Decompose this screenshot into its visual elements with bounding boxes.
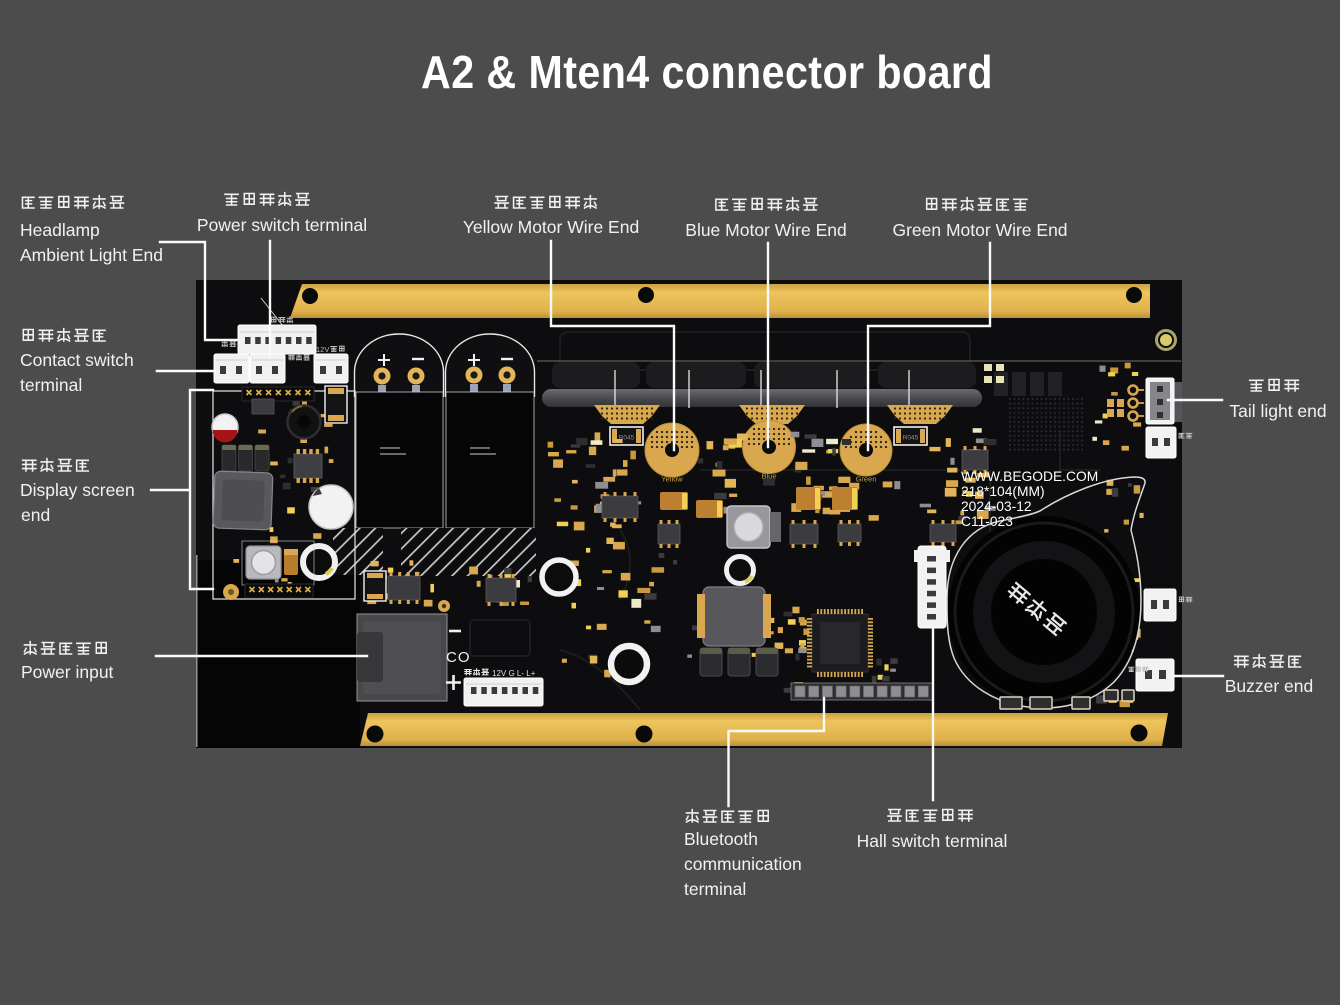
svg-text:Headlamp: Headlamp — [20, 220, 100, 240]
svg-text:Power input: Power input — [21, 662, 114, 682]
svg-text:Tail light end: Tail light end — [1229, 401, 1326, 421]
svg-text:Green: Green — [856, 475, 877, 484]
svg-text:Power switch terminal: Power switch terminal — [197, 215, 367, 235]
svg-text:12V G L- L+: 12V G L- L+ — [492, 669, 536, 678]
svg-text:terminal: terminal — [684, 879, 746, 899]
svg-text:A2 & Mten4 connector board: A2 & Mten4 connector board — [421, 47, 993, 99]
svg-text:Green Motor Wire End: Green Motor Wire End — [892, 220, 1067, 240]
svg-text:Display screen: Display screen — [20, 480, 135, 500]
svg-text:R045: R045 — [903, 435, 919, 442]
svg-text:terminal: terminal — [20, 375, 82, 395]
svg-text:2024-03-12: 2024-03-12 — [961, 499, 1032, 514]
svg-text:218*104(MM): 218*104(MM) — [961, 484, 1045, 499]
svg-text:CO: CO — [446, 649, 471, 666]
svg-text:Blue Motor Wire End: Blue Motor Wire End — [685, 220, 846, 240]
svg-text:Hall switch terminal: Hall switch terminal — [857, 831, 1008, 851]
svg-text:Yellow Motor Wire End: Yellow Motor Wire End — [463, 217, 639, 237]
svg-text:end: end — [21, 505, 50, 525]
svg-text:Bluetooth: Bluetooth — [684, 829, 758, 849]
svg-text:communication: communication — [684, 854, 802, 874]
svg-text:Ambient Light End: Ambient Light End — [20, 245, 163, 265]
svg-text:Yellow: Yellow — [661, 475, 683, 484]
svg-text:Contact switch: Contact switch — [20, 350, 134, 370]
svg-text:WWW.BEGODE.COM: WWW.BEGODE.COM — [961, 469, 1098, 484]
svg-text:12V: 12V — [316, 345, 329, 354]
svg-text:Buzzer end: Buzzer end — [1225, 676, 1314, 696]
svg-text:C11-023: C11-023 — [961, 514, 1013, 529]
